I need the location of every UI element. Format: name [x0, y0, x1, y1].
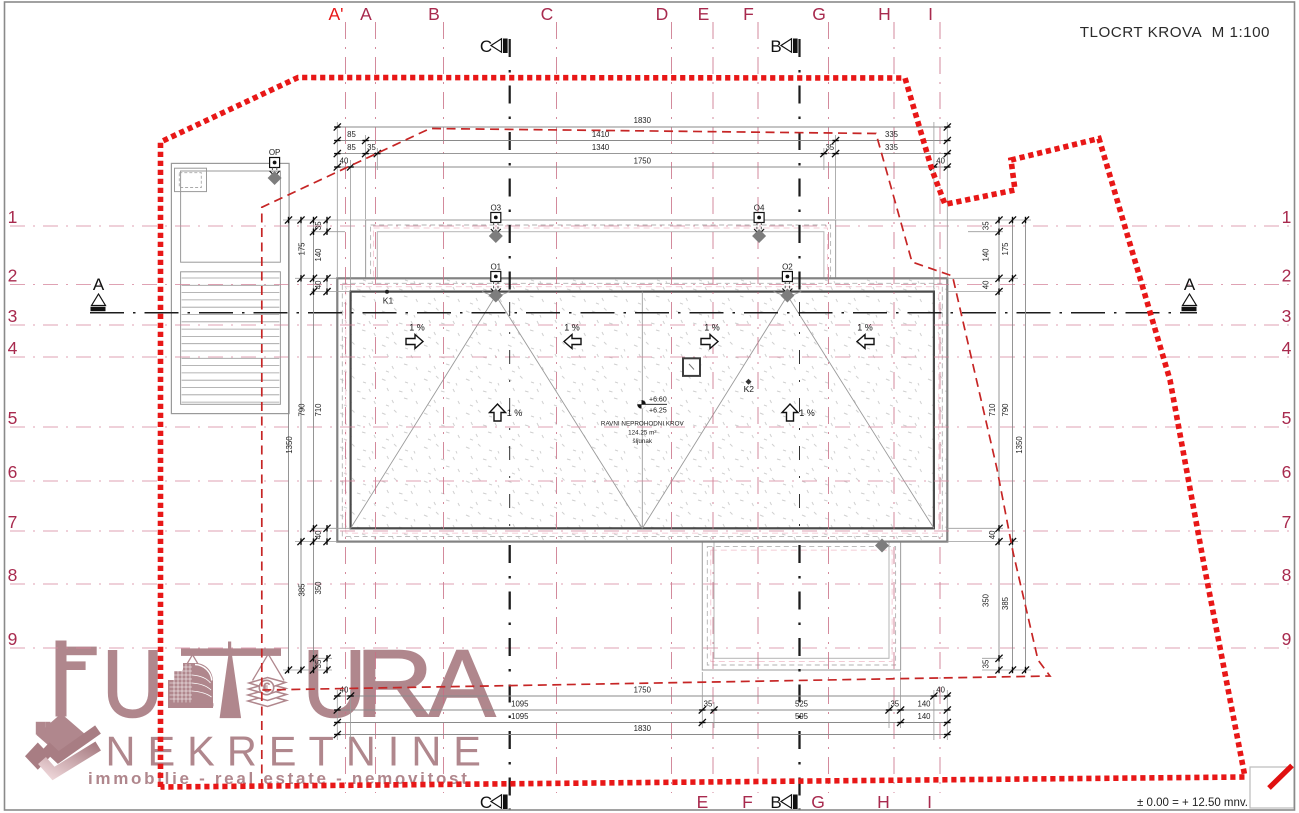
svg-text:A': A' — [328, 4, 343, 24]
svg-text:1340: 1340 — [592, 143, 610, 152]
svg-text:790: 790 — [298, 403, 307, 417]
svg-text:G: G — [812, 4, 826, 24]
svg-text:H: H — [878, 4, 891, 24]
svg-text:I: I — [928, 4, 933, 24]
svg-text:F: F — [742, 792, 753, 812]
svg-text:1 %: 1 % — [507, 408, 523, 418]
svg-text:2: 2 — [1282, 266, 1292, 286]
svg-text:O4: O4 — [754, 204, 765, 213]
svg-text:1 %: 1 % — [564, 323, 580, 333]
svg-text:1410: 1410 — [592, 130, 610, 139]
svg-text:5: 5 — [8, 408, 18, 428]
svg-text:1: 1 — [1282, 207, 1292, 227]
svg-text:385: 385 — [1001, 596, 1010, 610]
svg-text:40: 40 — [340, 156, 349, 165]
svg-text:A: A — [360, 4, 372, 24]
svg-text:1: 1 — [8, 207, 18, 227]
svg-text:O1: O1 — [490, 263, 501, 272]
svg-text:4: 4 — [8, 338, 18, 358]
svg-text:1350: 1350 — [1015, 436, 1024, 454]
svg-text:175: 175 — [1001, 242, 1010, 256]
svg-text:RAVNI NEPROHODNI KROV: RAVNI NEPROHODNI KROV — [601, 421, 685, 428]
svg-text:124.25 m²: 124.25 m² — [628, 430, 656, 437]
svg-text:40: 40 — [936, 686, 945, 695]
svg-text:710: 710 — [988, 403, 997, 417]
svg-text:8: 8 — [8, 565, 18, 585]
svg-text:H: H — [877, 792, 890, 812]
svg-text:1750: 1750 — [634, 156, 652, 165]
svg-text:€: € — [262, 681, 270, 697]
svg-text:B: B — [770, 37, 781, 56]
svg-text:O2: O2 — [782, 263, 793, 272]
svg-text:790: 790 — [1001, 403, 1010, 417]
svg-text:A: A — [429, 631, 496, 738]
svg-text:1350: 1350 — [285, 436, 294, 454]
svg-text:140: 140 — [917, 700, 931, 709]
svg-text:175: 175 — [298, 242, 307, 256]
svg-text:+6.60: +6.60 — [649, 397, 667, 404]
svg-text:40: 40 — [936, 156, 945, 165]
svg-text:710: 710 — [314, 403, 323, 417]
svg-text:4: 4 — [1282, 338, 1292, 358]
svg-text:35: 35 — [704, 700, 713, 709]
svg-text:40: 40 — [982, 280, 991, 289]
svg-text:U: U — [102, 631, 164, 738]
svg-text:šljunak: šljunak — [632, 438, 652, 445]
svg-text:35: 35 — [367, 143, 376, 152]
svg-text:3: 3 — [1282, 306, 1292, 326]
svg-text:1 %: 1 % — [409, 323, 425, 333]
svg-text:85: 85 — [347, 130, 356, 139]
svg-text:K1: K1 — [383, 296, 394, 306]
svg-text:35: 35 — [314, 659, 323, 668]
svg-text:385: 385 — [298, 583, 307, 597]
svg-text:C: C — [480, 37, 492, 56]
svg-text:D: D — [656, 4, 669, 24]
svg-text:2: 2 — [8, 266, 18, 286]
svg-text:O3: O3 — [490, 204, 501, 213]
svg-text:140: 140 — [982, 248, 991, 262]
svg-text:OP: OP — [269, 148, 281, 157]
svg-text:3: 3 — [8, 306, 18, 326]
svg-text:40: 40 — [988, 530, 997, 539]
svg-text:350: 350 — [982, 593, 991, 607]
svg-text:1750: 1750 — [634, 686, 652, 695]
svg-text:9: 9 — [1282, 629, 1292, 649]
svg-text:1830: 1830 — [634, 116, 652, 125]
svg-text:G: G — [811, 792, 825, 812]
svg-text:1830: 1830 — [634, 724, 652, 733]
svg-text:5: 5 — [1282, 408, 1292, 428]
svg-text:85: 85 — [347, 143, 356, 152]
svg-text:350: 350 — [314, 581, 323, 595]
svg-text:C: C — [480, 793, 492, 812]
svg-text:± 0.00 = + 12.50 mnv.: ± 0.00 = + 12.50 mnv. — [1137, 797, 1248, 809]
svg-text:140: 140 — [314, 248, 323, 262]
svg-text:35: 35 — [314, 221, 323, 230]
svg-text:35: 35 — [982, 221, 991, 230]
svg-text:A: A — [1184, 275, 1196, 294]
svg-text:1095: 1095 — [511, 712, 529, 721]
svg-text:C: C — [541, 4, 554, 24]
svg-text:+6.25: +6.25 — [649, 408, 667, 415]
svg-text:E: E — [697, 792, 709, 812]
svg-text:40: 40 — [314, 530, 323, 539]
svg-text:TLOCRT KROVA M 1:100: TLOCRT KROVA M 1:100 — [1080, 24, 1270, 41]
svg-text:1 %: 1 % — [857, 323, 873, 333]
svg-text:B: B — [770, 793, 781, 812]
svg-text:40: 40 — [340, 686, 349, 695]
svg-text:8: 8 — [1282, 565, 1292, 585]
svg-text:1 %: 1 % — [799, 408, 815, 418]
svg-text:140: 140 — [917, 712, 931, 721]
svg-text:1 %: 1 % — [704, 323, 720, 333]
svg-text:35: 35 — [825, 143, 834, 152]
svg-text:6: 6 — [1282, 462, 1292, 482]
svg-text:9: 9 — [8, 629, 18, 649]
svg-text:B: B — [428, 4, 440, 24]
svg-text:7: 7 — [1282, 512, 1292, 532]
svg-text:F: F — [743, 4, 754, 24]
svg-text:R: R — [356, 631, 434, 738]
svg-text:595: 595 — [795, 712, 809, 721]
svg-text:40: 40 — [314, 280, 323, 289]
svg-text:1095: 1095 — [511, 700, 529, 709]
svg-text:7: 7 — [8, 512, 18, 532]
svg-text:335: 335 — [885, 130, 899, 139]
svg-text:A: A — [93, 275, 105, 294]
svg-text:I: I — [927, 792, 932, 812]
svg-text:E: E — [698, 4, 710, 24]
svg-text:K2: K2 — [744, 384, 755, 394]
svg-text:35: 35 — [982, 659, 991, 668]
svg-text:525: 525 — [795, 700, 809, 709]
svg-text:35: 35 — [890, 700, 899, 709]
svg-text:335: 335 — [885, 143, 899, 152]
svg-text:6: 6 — [8, 462, 18, 482]
